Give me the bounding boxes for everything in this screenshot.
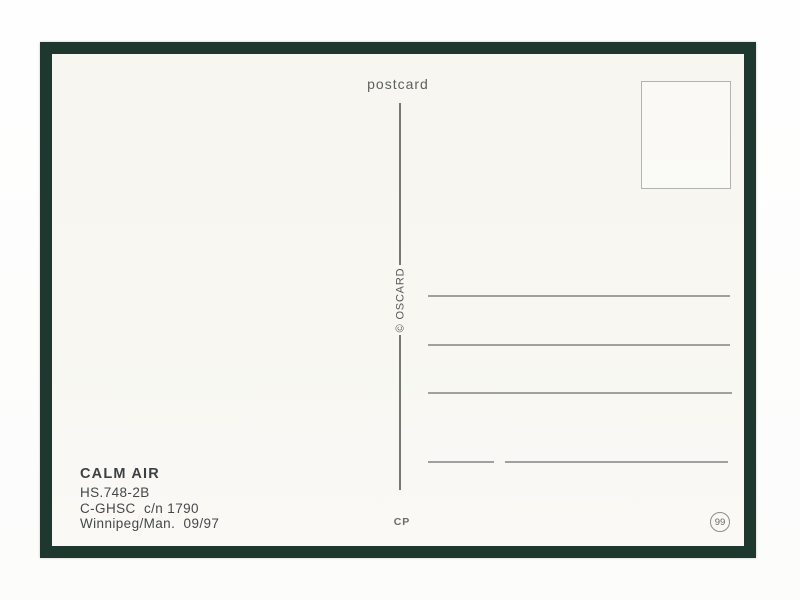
stamp-box [641, 81, 731, 189]
card-number-badge: 99 [710, 512, 730, 532]
address-line-1 [428, 295, 730, 297]
card-number-text: 99 [715, 517, 726, 528]
address-line-2 [428, 344, 730, 346]
address-line-4-left [428, 461, 494, 463]
postcard-back: postcard © OSCARD CALM AIR HS.748-2B C-G… [52, 54, 744, 546]
publisher-credit-text: © OSCARD [394, 268, 406, 333]
caption-aircraft-type: HS.748-2B [80, 485, 219, 501]
caption-location-date: Winnipeg/Man. 09/97 [80, 516, 219, 532]
caption-registration: C-GHSC c/n 1790 [80, 501, 219, 517]
caption-block: CALM AIR HS.748-2B C-GHSC c/n 1790 Winni… [80, 466, 219, 532]
postcard-border: postcard © OSCARD CALM AIR HS.748-2B C-G… [40, 42, 756, 558]
center-divider-top [399, 103, 401, 265]
address-line-4-right [505, 461, 728, 463]
center-divider-bottom [399, 335, 401, 490]
printer-mark: CP [390, 516, 414, 528]
address-line-3 [428, 392, 732, 394]
caption-airline: CALM AIR [80, 466, 219, 482]
